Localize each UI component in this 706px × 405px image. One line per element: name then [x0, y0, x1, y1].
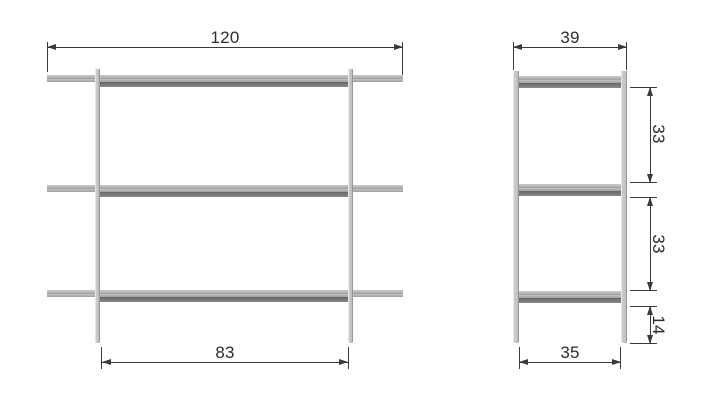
- arrowhead-down-icon: [647, 282, 653, 291]
- arrowhead-up-icon: [647, 87, 653, 96]
- dim-line: [102, 362, 348, 363]
- side-bottom-shelf-underside: [519, 298, 621, 303]
- front-middle-shelf-underside: [100, 192, 348, 197]
- side-bottom-shelf-board: [519, 291, 621, 298]
- front-top-shelf-underside: [100, 82, 348, 87]
- dim-overall-width-label: 120: [47, 28, 403, 47]
- arrowhead-down-icon: [647, 174, 653, 183]
- dim-leg-span-front-label: 83: [102, 343, 348, 362]
- side-right-leg: [621, 71, 627, 343]
- front-bottom-shelf-underside: [100, 297, 348, 302]
- front-left-leg: [95, 69, 100, 343]
- side-middle-shelf-underside: [519, 191, 621, 196]
- arrowhead-up-icon: [647, 197, 653, 206]
- dim-bottom-clearance-label: 14: [645, 312, 671, 338]
- front-right-leg: [348, 69, 353, 343]
- side-top-shelf-underside: [519, 83, 621, 88]
- dim-line: [519, 362, 621, 363]
- dim-leg-span-side-label: 35: [519, 343, 621, 362]
- dim-extension-line: [348, 347, 349, 369]
- side-top-shelf-board: [519, 76, 621, 83]
- dim-line: [513, 47, 627, 48]
- dim-shelf-gap-lower-label: 33: [645, 231, 671, 257]
- dim-line: [47, 47, 403, 48]
- side-left-leg: [513, 71, 519, 343]
- dim-shelf-gap-upper-label: 33: [645, 121, 671, 147]
- side-middle-shelf-board: [519, 184, 621, 191]
- shelf-technical-drawing: 120 83 39: [0, 0, 706, 405]
- dim-overall-depth-label: 39: [513, 28, 627, 47]
